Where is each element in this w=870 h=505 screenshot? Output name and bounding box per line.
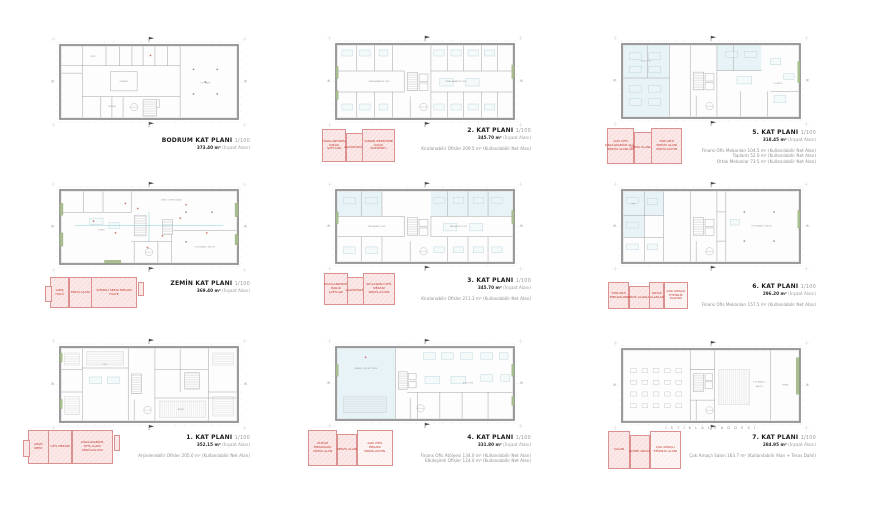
floor-plan-kat-7: ÇOK AMAÇLISALONTERAS bbox=[622, 349, 800, 422]
plan-scale: 1/100 bbox=[801, 130, 816, 136]
plan-drawing: ÇOK AMAÇLI SALONOFİS bbox=[622, 190, 800, 263]
plan-legend: TOPLANTIMEKANLARISERVİS ALANLARIORTAKALA… bbox=[608, 282, 690, 309]
svg-text:ARŞİV: ARŞİV bbox=[178, 408, 185, 411]
plan-title-block: BODRUM KAT PLANI 1/100373.40 m² (İnşaat … bbox=[100, 137, 250, 151]
legend-label: SALON bbox=[614, 448, 624, 452]
svg-text:TERAS: TERAS bbox=[782, 384, 789, 387]
plan-drawing: AÇIK OFİSLOUNGE bbox=[622, 44, 800, 118]
legend-label: ŞAFTLARI bbox=[329, 291, 343, 295]
stairs-icon bbox=[407, 218, 417, 236]
svg-text:TESİSAT: TESİSAT bbox=[108, 105, 117, 108]
plan-title-text: ZEMİN KAT PLANI bbox=[170, 280, 232, 287]
plan-title-block: 1. KAT PLANI 1/100352.15 m² (İnşaat Alan… bbox=[100, 434, 250, 458]
plan-area-line: 345.70 m² (İnşaat Alanı) bbox=[381, 285, 531, 291]
plan-scale: 1/100 bbox=[516, 128, 531, 134]
legend-cell: SÜREKLİ SERGİ MEKANIFUAYE bbox=[91, 277, 137, 308]
plan-title-text: 7. KAT PLANI bbox=[752, 434, 798, 441]
svg-text:PAYLAŞIMLI OFİS: PAYLAŞIMLI OFİS bbox=[368, 225, 386, 228]
svg-text:FİNANS OFİS ATÖLYESİ: FİNANS OFİS ATÖLYESİ bbox=[354, 367, 378, 370]
plan-area: 352.15 m² bbox=[197, 442, 221, 447]
outer-walls bbox=[622, 349, 800, 422]
legend-cell: PAYLAŞIMLI OFİSMEKANISİRKÜLASYON bbox=[363, 273, 395, 305]
svg-text:OTOPARK: OTOPARK bbox=[200, 81, 210, 84]
plan-area: 373.40 m² bbox=[197, 145, 221, 150]
plan-area-line: 373.40 m² (İnşaat Alanı) bbox=[100, 145, 250, 151]
highlight-tint bbox=[337, 348, 395, 418]
floor-plan-kat-1: ARŞİVOFİS bbox=[60, 347, 238, 422]
street-name-label: İ S T İ K L A L C A D D E S İ bbox=[622, 426, 800, 430]
plan-drawing: FİNANS OFİS ATÖLYESİAÇIK OFİS bbox=[336, 347, 514, 420]
legend-cell: GİRİŞHOLÜ bbox=[50, 277, 69, 308]
plan-drawing: GİRİŞ / SERGİ ALANIÇOK AMAÇLI SALONFUAYE bbox=[60, 190, 238, 264]
plan-area: 318.45 m² bbox=[763, 137, 787, 142]
plan-title-text: 6. KAT PLANI bbox=[752, 283, 798, 290]
legend-label: ALANLAR bbox=[650, 296, 664, 300]
svg-text:LOUNGE: LOUNGE bbox=[773, 83, 782, 85]
svg-text:AÇIK OFİS: AÇIK OFİS bbox=[463, 382, 474, 385]
svg-text:ÇOK AMAÇLI: ÇOK AMAÇLI bbox=[753, 381, 766, 384]
stairs-icon bbox=[398, 372, 407, 390]
legend-cell: ORTAKALANLAR bbox=[649, 282, 664, 309]
plan-title-block: 2. KAT PLANI 1/100345.70 m² (İnşaat Alan… bbox=[381, 127, 531, 151]
svg-text:OFİS: OFİS bbox=[631, 203, 636, 206]
legend-label: OFİS MEKANI bbox=[50, 445, 69, 449]
svg-text:KİRALANABİLİR OFİS: KİRALANABİLİR OFİS bbox=[369, 80, 391, 83]
plan-scale: 1/100 bbox=[516, 435, 531, 441]
legend-cell: SALON bbox=[608, 431, 630, 469]
plan-area: 345.70 m² bbox=[478, 135, 502, 140]
plan-legend: ARŞİVDEPOOFİS MEKANIKİRALANABİLİROFİS AL… bbox=[28, 430, 114, 464]
svg-text:SALON: SALON bbox=[756, 385, 763, 388]
plan-title-block: 4. KAT PLANI 1/100331.80 m² (İnşaat Alan… bbox=[381, 434, 531, 464]
plan-title-text: 4. KAT PLANI bbox=[467, 434, 513, 441]
green-planter bbox=[798, 62, 800, 83]
legend-cell: KİRALANABİLİROFİS ALANISİRKÜLASYON bbox=[72, 430, 113, 464]
plan-scale: 1/100 bbox=[516, 278, 531, 284]
svg-text:PAYLAŞIMLI OFİS: PAYLAŞIMLI OFİS bbox=[450, 225, 468, 228]
legend-cell: ÇOK AMAÇLIETKİNLİK ALANI bbox=[650, 431, 681, 469]
floor-plan-kat-6: ÇOK AMAÇLI SALONOFİS bbox=[622, 190, 800, 263]
architectural-sheet: DEPOSIĞINAKOTOPARKTESİSATBODRUM KAT PLAN… bbox=[0, 0, 870, 505]
floor-plan-kat-3: PAYLAŞIMLI OFİSPAYLAŞIMLI OFİS bbox=[336, 190, 514, 263]
plan-title-text: BODRUM KAT PLANI bbox=[162, 137, 233, 144]
plan-legend: HAVALANDIRMAIŞIKLIKŞAFTLARIASANSÖRLERPAY… bbox=[324, 273, 396, 305]
plan-area-line: 345.70 m² (İnşaat Alanı) bbox=[381, 135, 531, 141]
plan-area-line: 331.80 m² (İnşaat Alanı) bbox=[381, 442, 531, 448]
svg-text:ÇOK AMAÇLI SALON: ÇOK AMAÇLI SALON bbox=[751, 225, 772, 228]
legend-label: KORİDORU bbox=[370, 147, 386, 151]
legend-label: SERVİS ALANI bbox=[337, 448, 358, 452]
legend-label: SAHNE ARKASI bbox=[629, 450, 651, 454]
plan-area-note: (İnşaat Alanı) bbox=[788, 291, 816, 296]
stairs-icon bbox=[143, 100, 156, 116]
legend-label: ORTAK ALAN bbox=[313, 450, 332, 454]
plan-annotations: Arşivlenebilir Ofisler 205.0 m² (Kullanı… bbox=[100, 453, 250, 459]
plan-annotation-line: Kiralanabilir Ofisler 211.3 m² (Kullanıl… bbox=[381, 296, 531, 302]
plan-legend: SALONSAHNE ARKASIÇOK AMAÇLIETKİNLİK ALAN… bbox=[608, 431, 682, 469]
plan-scale: 1/100 bbox=[235, 281, 250, 287]
plan-annotation-line: Arşivlenebilir Ofisler 205.0 m² (Kullanı… bbox=[100, 453, 250, 459]
plan-area: 284.95 m² bbox=[763, 442, 787, 447]
plan-area-note: (İnşaat Alanı) bbox=[503, 285, 531, 290]
plan-legend: GİRİŞHOLÜSERGİ ALANISÜREKLİ SERGİ MEKANI… bbox=[50, 277, 138, 308]
plan-scale: 1/100 bbox=[801, 284, 816, 290]
plan-legend: AÇIK OFİSKİRALANABİLİR ALANSERVİS ALANLA… bbox=[607, 128, 683, 164]
plan-drawing: PAYLAŞIMLI OFİSPAYLAŞIMLI OFİS bbox=[336, 190, 514, 263]
plan-title-text: 1. KAT PLANI bbox=[186, 434, 232, 441]
legend-label: DEPO bbox=[34, 447, 42, 451]
plan-area-note: (İnşaat Alanı) bbox=[222, 288, 250, 293]
legend-outline-tab bbox=[138, 282, 144, 296]
legend-label: ETKİNLİK ALANI bbox=[654, 450, 677, 454]
plan-title: 5. KAT PLANI 1/100 bbox=[666, 129, 816, 137]
plan-area-note: (İnşaat Alanı) bbox=[222, 442, 250, 447]
green-planter bbox=[798, 210, 800, 228]
legend-label: SERGİ ALANI bbox=[71, 291, 90, 295]
legend-label: HOLÜ bbox=[56, 293, 64, 297]
stairs-icon bbox=[407, 73, 417, 91]
plan-area-note: (İnşaat Alanı) bbox=[503, 135, 531, 140]
floor-plan-kat-2: KİRALANABİLİR OFİSKİRALANABİLİR OFİS bbox=[336, 44, 514, 119]
legend-cell: ATÖLYEMEKANLARIORTAK ALAN bbox=[308, 430, 337, 466]
floor-plan-zemin-kat: GİRİŞ / SERGİ ALANIÇOK AMAÇLI SALONFUAYE bbox=[60, 190, 238, 264]
plan-drawing: DEPOSIĞINAKOTOPARKTESİSAT bbox=[60, 45, 238, 119]
legend-cell: OFİS MEKANI bbox=[48, 430, 72, 464]
plan-annotation-line: Ortak Mekanlar 73.5 m² (Kullanılabilir N… bbox=[666, 159, 816, 165]
plan-scale: 1/100 bbox=[235, 435, 250, 441]
plan-drawing: KİRALANABİLİR OFİSKİRALANABİLİR OFİS bbox=[336, 44, 514, 119]
plan-legend: ATÖLYEMEKANLARIORTAK ALANSERVİS ALANIAÇI… bbox=[308, 430, 394, 466]
legend-outline-tab bbox=[23, 440, 30, 457]
svg-text:AÇIK OFİS: AÇIK OFİS bbox=[641, 60, 652, 63]
legend-cell: ÇOK AMAÇLIETKİNLİKSALONU bbox=[664, 282, 689, 309]
floor-plan-bodrum-kat: DEPOSIĞINAKOTOPARKTESİSAT bbox=[60, 45, 238, 119]
stairs-icon bbox=[693, 374, 703, 392]
plan-title-block: 7. KAT PLANI 1/100284.95 m² (İnşaat Alan… bbox=[666, 434, 816, 458]
legend-label: MEKANLARI bbox=[610, 296, 627, 300]
plan-title-text: 2. KAT PLANI bbox=[467, 127, 513, 134]
legend-outline-tab bbox=[114, 435, 120, 451]
plan-legend: HAVALANDIRMAIŞIKLIKŞAFTLARIASANSÖRLERYAN… bbox=[322, 129, 396, 162]
legend-cell: SERVİS ALANLARI bbox=[629, 286, 650, 309]
legend-label: SALONU bbox=[670, 297, 682, 301]
legend-cell: AÇIK OFİSMEKANISİRKÜLASYON bbox=[357, 430, 393, 466]
floor-plan-kat-5: AÇIK OFİSLOUNGE bbox=[622, 44, 800, 118]
plan-title: 3. KAT PLANI 1/100 bbox=[381, 277, 531, 285]
plan-area-line: 318.45 m² (İnşaat Alanı) bbox=[666, 137, 816, 143]
plan-scale: 1/100 bbox=[235, 138, 250, 144]
svg-text:ÇOK AMAÇLI SALON: ÇOK AMAÇLI SALON bbox=[194, 246, 215, 249]
plan-title-block: 3. KAT PLANI 1/100345.70 m² (İnşaat Alan… bbox=[381, 277, 531, 301]
plan-title-block: 5. KAT PLANI 1/100318.45 m² (İnşaat Alan… bbox=[666, 129, 816, 164]
svg-text:KİRALANABİLİR OFİS: KİRALANABİLİR OFİS bbox=[446, 80, 468, 83]
legend-cell: YANGIN MERDİVENİKAÇIŞKORİDORU bbox=[362, 129, 395, 162]
plan-title: 7. KAT PLANI 1/100 bbox=[666, 434, 816, 442]
legend-label: SİRKÜLASYON bbox=[364, 450, 385, 454]
plan-area-note: (İnşaat Alanı) bbox=[222, 145, 250, 150]
legend-cell: ORTAK ALANLAR bbox=[634, 132, 652, 164]
legend-cell: HAVALANDIRMAIŞIKLIKŞAFTLARI bbox=[324, 273, 348, 305]
plan-drawing: ÇOK AMAÇLISALONTERAS bbox=[622, 349, 800, 422]
plan-area-note: (İnşaat Alanı) bbox=[503, 442, 531, 447]
green-planter bbox=[796, 358, 799, 395]
svg-text:SIĞINAK: SIĞINAK bbox=[120, 80, 129, 83]
plan-annotations: Finans Ofis Atölyesi 134.0 m² (Kullanıla… bbox=[381, 453, 531, 464]
legend-cell: HAVALANDIRMAIŞIKLIKŞAFTLARI bbox=[322, 129, 346, 162]
legend-cell: SERVİS ALANI bbox=[337, 434, 358, 466]
legend-cell: TOPLANTISERVİS ALANISİRKÜLASYON bbox=[651, 128, 681, 164]
svg-text:DEPO: DEPO bbox=[90, 56, 96, 58]
plan-annotations: Kiralanabilir Ofisler 211.3 m² (Kullanıl… bbox=[381, 296, 531, 302]
plan-title: BODRUM KAT PLANI 1/100 bbox=[100, 137, 250, 145]
legend-label: ŞAFTLARI bbox=[327, 147, 341, 151]
legend-label: FUAYE bbox=[109, 293, 118, 297]
legend-label: SİRKÜLASYON bbox=[656, 148, 677, 152]
legend-cell: ARŞİVDEPO bbox=[28, 430, 49, 464]
legend-cell: ASANSÖRLER bbox=[347, 277, 364, 305]
svg-text:GİRİŞ / SERGİ ALANI: GİRİŞ / SERGİ ALANI bbox=[161, 198, 182, 201]
plan-title: 1. KAT PLANI 1/100 bbox=[100, 434, 250, 442]
plan-area: 345.70 m² bbox=[478, 285, 502, 290]
plan-area: 296.20 m² bbox=[763, 291, 787, 296]
plan-area-line: 284.95 m² (İnşaat Alanı) bbox=[666, 442, 816, 448]
svg-text:OFİS: OFİS bbox=[102, 363, 107, 366]
plan-annotation-line: Çok Amaçlı Salon 163.7 m² (Kullanılabili… bbox=[666, 453, 816, 459]
svg-text:FUAYE: FUAYE bbox=[98, 229, 105, 232]
plan-annotation-line: Kiralanabilir Ofisler 209.5 m² (Kullanıl… bbox=[381, 146, 531, 152]
plan-area-note: (İnşaat Alanı) bbox=[788, 442, 816, 447]
plan-area: 369.40 m² bbox=[197, 288, 221, 293]
stairs-icon bbox=[693, 72, 703, 90]
plan-title-text: 3. KAT PLANI bbox=[467, 277, 513, 284]
legend-cell: SERGİ ALANI bbox=[69, 277, 92, 308]
plan-area-line: 352.15 m² (İnşaat Alanı) bbox=[100, 442, 250, 448]
plan-title-text: 5. KAT PLANI bbox=[752, 129, 798, 136]
plan-annotations: Çok Amaçlı Salon 163.7 m² (Kullanılabili… bbox=[666, 453, 816, 459]
plan-drawing: ARŞİVOFİS bbox=[60, 347, 238, 422]
floor-plan-kat-4: FİNANS OFİS ATÖLYESİAÇIK OFİS bbox=[336, 347, 514, 420]
plan-area: 331.80 m² bbox=[478, 442, 502, 447]
stairs-icon bbox=[693, 218, 703, 236]
plan-title: 2. KAT PLANI 1/100 bbox=[381, 127, 531, 135]
plan-annotation-line: Etkileşimli Ofisler 124.0 m² (Kullanılab… bbox=[381, 458, 531, 464]
plan-annotations: Kiralanabilir Ofisler 209.5 m² (Kullanıl… bbox=[381, 146, 531, 152]
plan-title: 4. KAT PLANI 1/100 bbox=[381, 434, 531, 442]
legend-outline-tab bbox=[45, 286, 52, 302]
legend-label: SİRKÜLASYON bbox=[82, 449, 103, 453]
plan-annotations: Finans Ofis Mekanları 104.5 m² (Kullanıl… bbox=[666, 148, 816, 165]
legend-label: SİRKÜLASYON bbox=[368, 291, 389, 295]
legend-cell: SAHNE ARKASI bbox=[630, 435, 651, 469]
legend-cell: ASANSÖRLER bbox=[346, 133, 363, 162]
plan-scale: 1/100 bbox=[801, 435, 816, 441]
plan-area-note: (İnşaat Alanı) bbox=[788, 137, 816, 142]
